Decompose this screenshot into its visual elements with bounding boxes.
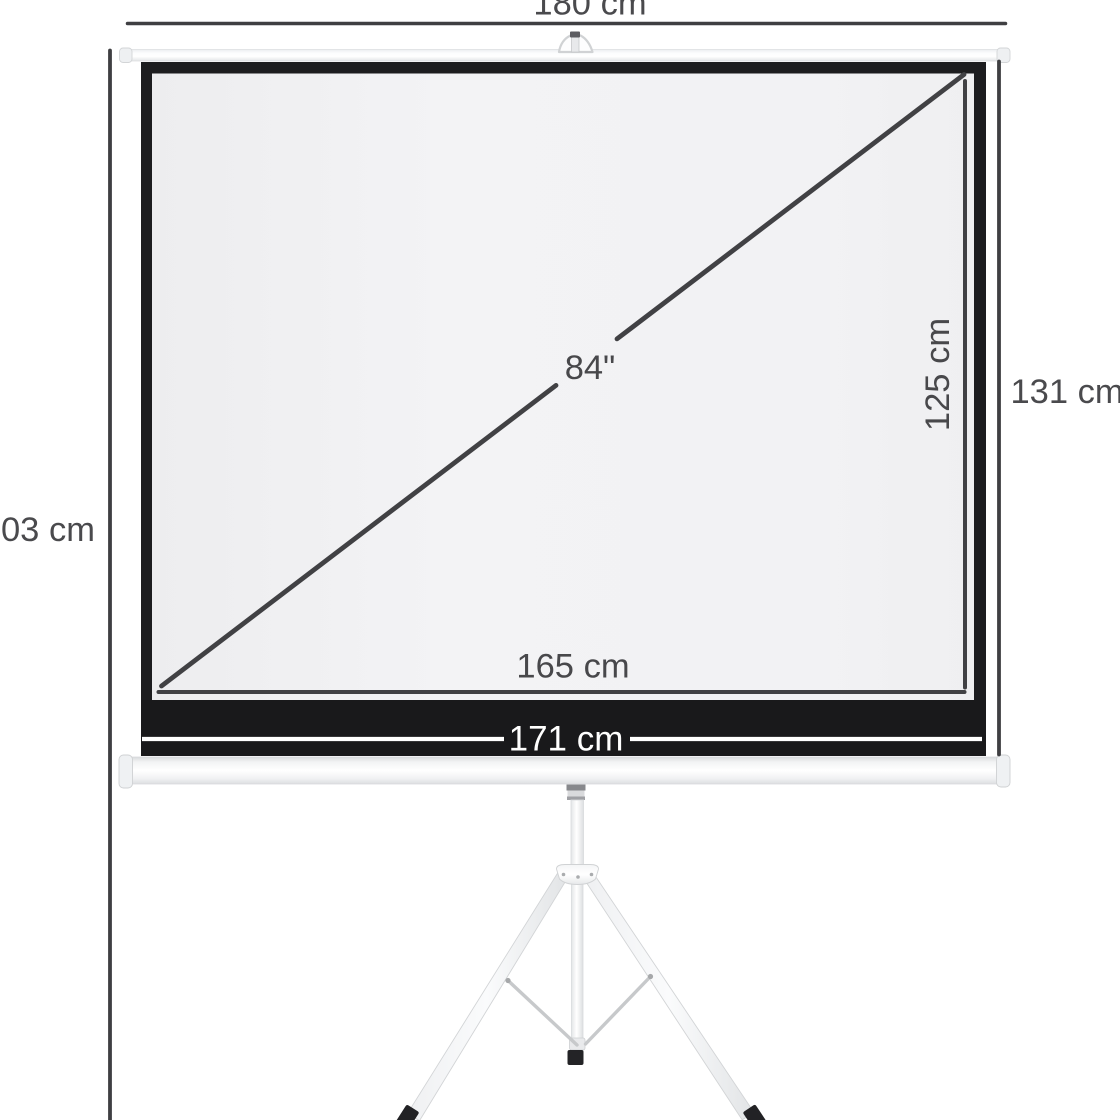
svg-text:180 cm: 180 cm bbox=[533, 0, 646, 23]
svg-text:84": 84" bbox=[565, 349, 616, 387]
svg-text:131 cm: 131 cm bbox=[1011, 373, 1120, 411]
svg-text:125 cm: 125 cm bbox=[919, 318, 957, 431]
svg-text:03 cm: 03 cm bbox=[1, 511, 95, 549]
svg-text:171 cm: 171 cm bbox=[509, 720, 624, 759]
svg-text:165 cm: 165 cm bbox=[516, 648, 629, 686]
